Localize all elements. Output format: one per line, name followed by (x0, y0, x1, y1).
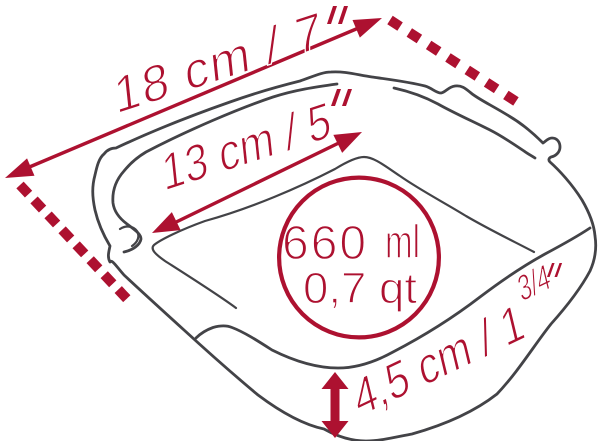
svg-text:660: 660 (282, 217, 368, 270)
svg-text:ml: ml (385, 215, 420, 268)
svg-text:3/4: 3/4 (514, 257, 554, 310)
svg-text:0,7 qt: 0,7 qt (303, 264, 417, 313)
